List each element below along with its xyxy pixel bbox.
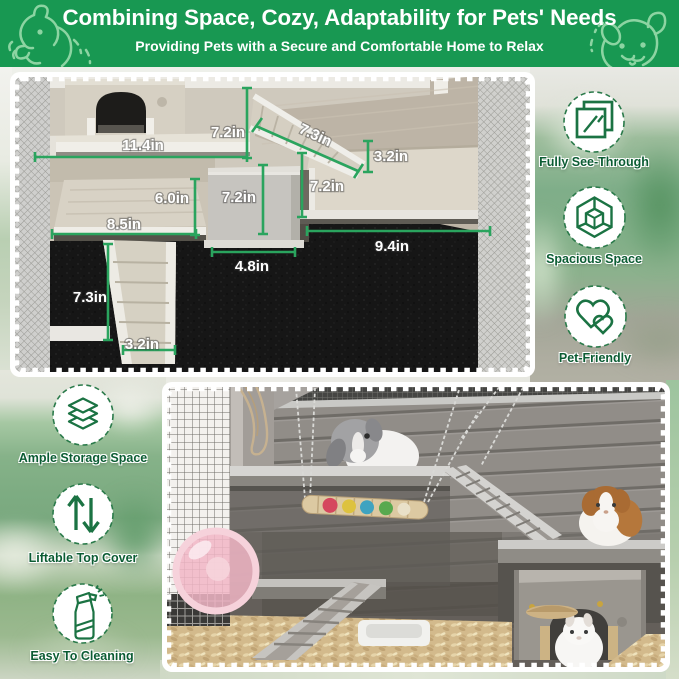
svg-text:7.3in: 7.3in: [73, 289, 107, 306]
svg-text:7.2in: 7.2in: [310, 178, 344, 195]
svg-text:7.2in: 7.2in: [211, 124, 245, 141]
svg-text:7.2in: 7.2in: [222, 189, 256, 206]
svg-text:9.4in: 9.4in: [375, 238, 409, 255]
svg-text:8.5in: 8.5in: [107, 216, 141, 233]
svg-text:4.8in: 4.8in: [235, 258, 269, 275]
svg-text:3.2in: 3.2in: [125, 336, 159, 353]
svg-text:6.0in: 6.0in: [155, 190, 189, 207]
svg-text:3.2in: 3.2in: [374, 148, 408, 165]
svg-text:11.4in: 11.4in: [122, 137, 164, 154]
